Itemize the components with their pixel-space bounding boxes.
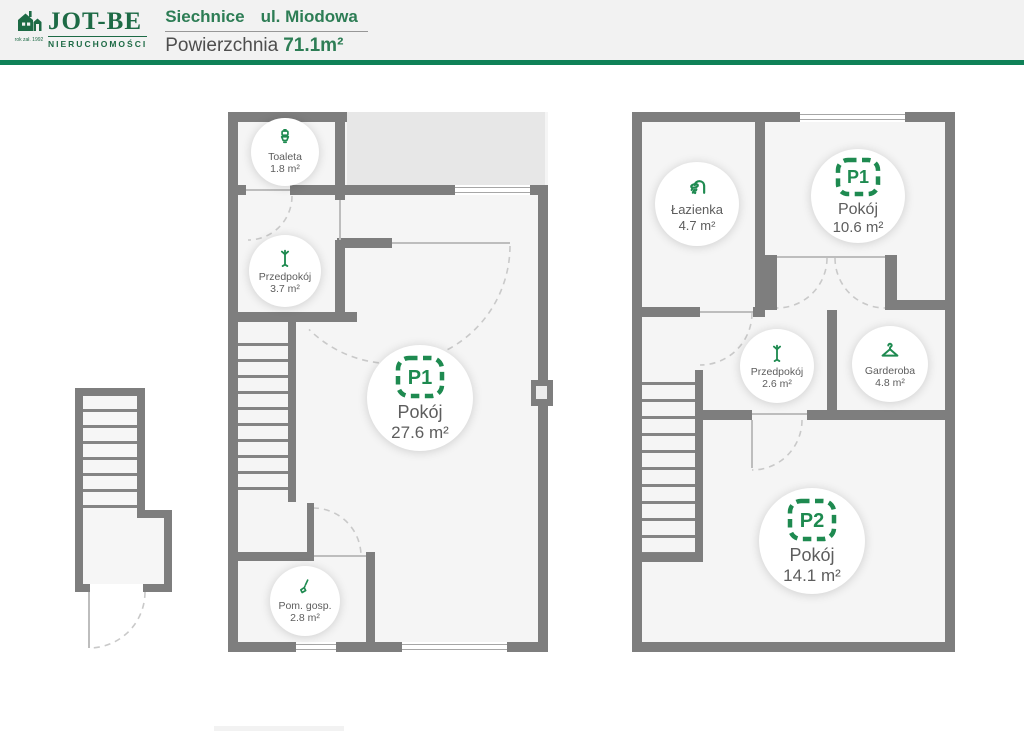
listing-street: ul. Miodowa <box>261 7 358 26</box>
entry-landing <box>137 518 164 584</box>
door-arc <box>89 592 145 648</box>
wall <box>228 312 357 322</box>
brand-logo: rok zał. 1992 JOT-BE NIERUCHOMOŚCI <box>14 9 147 49</box>
wall <box>137 388 145 510</box>
wall <box>632 112 955 122</box>
wall <box>75 388 145 396</box>
logo-tagline: NIERUCHOMOŚCI <box>48 36 147 49</box>
room-area: 14.1 m² <box>783 566 841 586</box>
door-leaf <box>392 242 510 244</box>
room-area: 10.6 m² <box>833 219 884 237</box>
wall <box>755 112 765 317</box>
wall <box>697 410 752 420</box>
wall <box>637 553 703 562</box>
room-badge: P1 <box>394 354 446 400</box>
room-label-pokoj-p1-ground: P1 Pokój 27.6 m² <box>367 345 473 451</box>
window <box>455 185 530 195</box>
wall <box>288 322 296 502</box>
room-badge: P1 <box>834 156 882 198</box>
wall <box>75 388 83 592</box>
room-name: Pokój <box>838 200 878 219</box>
door-leaf <box>246 189 290 191</box>
hanger-icon <box>878 339 902 363</box>
wall <box>827 310 837 415</box>
footer-artifact <box>214 726 344 731</box>
wall <box>945 112 955 652</box>
header: rok zał. 1992 JOT-BE NIERUCHOMOŚCI Siech… <box>0 0 1024 60</box>
stairs-interior <box>238 330 288 502</box>
wall <box>228 185 246 195</box>
shaft-inner <box>536 386 547 399</box>
door-leaf <box>752 413 807 415</box>
door-arc <box>835 258 885 308</box>
wall <box>765 255 777 310</box>
room-area: 2.6 m² <box>762 378 792 391</box>
broom-icon <box>295 578 315 598</box>
room-label-toaleta: Toaleta 1.8 m² <box>251 118 319 186</box>
wall <box>637 307 700 317</box>
shower-icon <box>684 174 710 200</box>
wall <box>366 552 375 652</box>
room-label-pokoj-p2: P2 Pokój 14.1 m² <box>759 488 865 594</box>
room-label-przedpokoj-2: Przedpokój 2.6 m² <box>740 329 814 403</box>
room-label-pom-gosp: Pom. gosp. 2.8 m² <box>270 566 340 636</box>
listing-city: Siechnice <box>165 7 244 26</box>
stairs-entry <box>83 396 137 508</box>
coat-rack-icon <box>766 342 788 364</box>
wall <box>75 584 90 592</box>
window <box>296 642 336 652</box>
window <box>402 642 507 652</box>
window <box>800 112 905 122</box>
wall <box>228 552 314 561</box>
door-arc <box>248 196 292 240</box>
logo-text-block: JOT-BE NIERUCHOMOŚCI <box>48 9 147 49</box>
wall <box>335 112 345 195</box>
wall <box>164 510 172 592</box>
wall <box>143 584 172 592</box>
door-arc <box>313 508 361 556</box>
svg-text:P1: P1 <box>847 167 869 187</box>
listing-title-block: Siechniceul. Miodowa Powierzchnia71.1m² <box>165 0 368 57</box>
stairs-upper <box>642 368 695 555</box>
room-name: Przedpokój <box>751 366 804 379</box>
toilet-icon <box>275 129 295 149</box>
room-label-pokoj-p1-upper: P1 Pokój 10.6 m² <box>811 149 905 243</box>
room-name: Toaleta <box>268 151 302 164</box>
room-area: 4.8 m² <box>875 377 905 390</box>
logo-house-block: rok zał. 1992 <box>14 9 44 43</box>
wall <box>337 238 392 248</box>
room-name: Pokój <box>789 545 834 566</box>
svg-text:P1: P1 <box>408 367 432 389</box>
wall <box>538 185 548 652</box>
header-rule <box>0 60 1024 65</box>
room-area: 27.6 m² <box>391 423 449 443</box>
logo-brand: JOT-BE <box>48 9 147 34</box>
listing-address: Siechniceul. Miodowa <box>165 7 368 32</box>
room-name: Pokój <box>397 402 442 423</box>
wall <box>632 642 955 652</box>
room-area: 3.7 m² <box>270 283 300 296</box>
door-leaf <box>339 200 341 240</box>
area-label: Powierzchnia <box>165 35 278 56</box>
wall <box>290 185 345 195</box>
wall <box>753 307 765 317</box>
wall <box>897 300 945 310</box>
room-name: Garderoba <box>865 365 915 378</box>
door-leaf <box>314 555 366 557</box>
wall <box>335 240 345 322</box>
wall <box>885 255 897 310</box>
listing-area: Powierzchnia71.1m² <box>165 35 368 57</box>
area-value: 71.1m² <box>283 35 343 56</box>
wall <box>807 410 955 420</box>
wall <box>695 370 703 562</box>
room-area: 2.8 m² <box>290 612 320 625</box>
room-area: 4.7 m² <box>679 218 716 234</box>
house-logo-icon <box>16 9 43 32</box>
room-label-przedpokoj-1: Przedpokój 3.7 m² <box>249 235 321 307</box>
wall <box>632 112 642 652</box>
door-leaf <box>751 420 753 468</box>
door-arc <box>777 258 827 308</box>
room-label-lazienka: Łazienka 4.7 m² <box>655 162 739 246</box>
door-leaf <box>88 592 90 648</box>
room-label-garderoba: Garderoba 4.8 m² <box>852 326 928 402</box>
room-area: 1.8 m² <box>270 163 300 176</box>
room-name: Łazienka <box>671 202 723 218</box>
door-leaf <box>777 256 885 258</box>
coat-rack-icon <box>274 247 296 269</box>
room-badge: P2 <box>786 497 838 543</box>
room-name: Pom. gosp. <box>278 600 331 613</box>
room-name: Przedpokój <box>259 271 312 284</box>
svg-text:P2: P2 <box>800 510 824 532</box>
door-leaf <box>700 311 753 313</box>
logo-established: rok zał. 1992 <box>14 37 44 43</box>
door-arc <box>752 420 802 470</box>
terrace <box>347 112 545 185</box>
